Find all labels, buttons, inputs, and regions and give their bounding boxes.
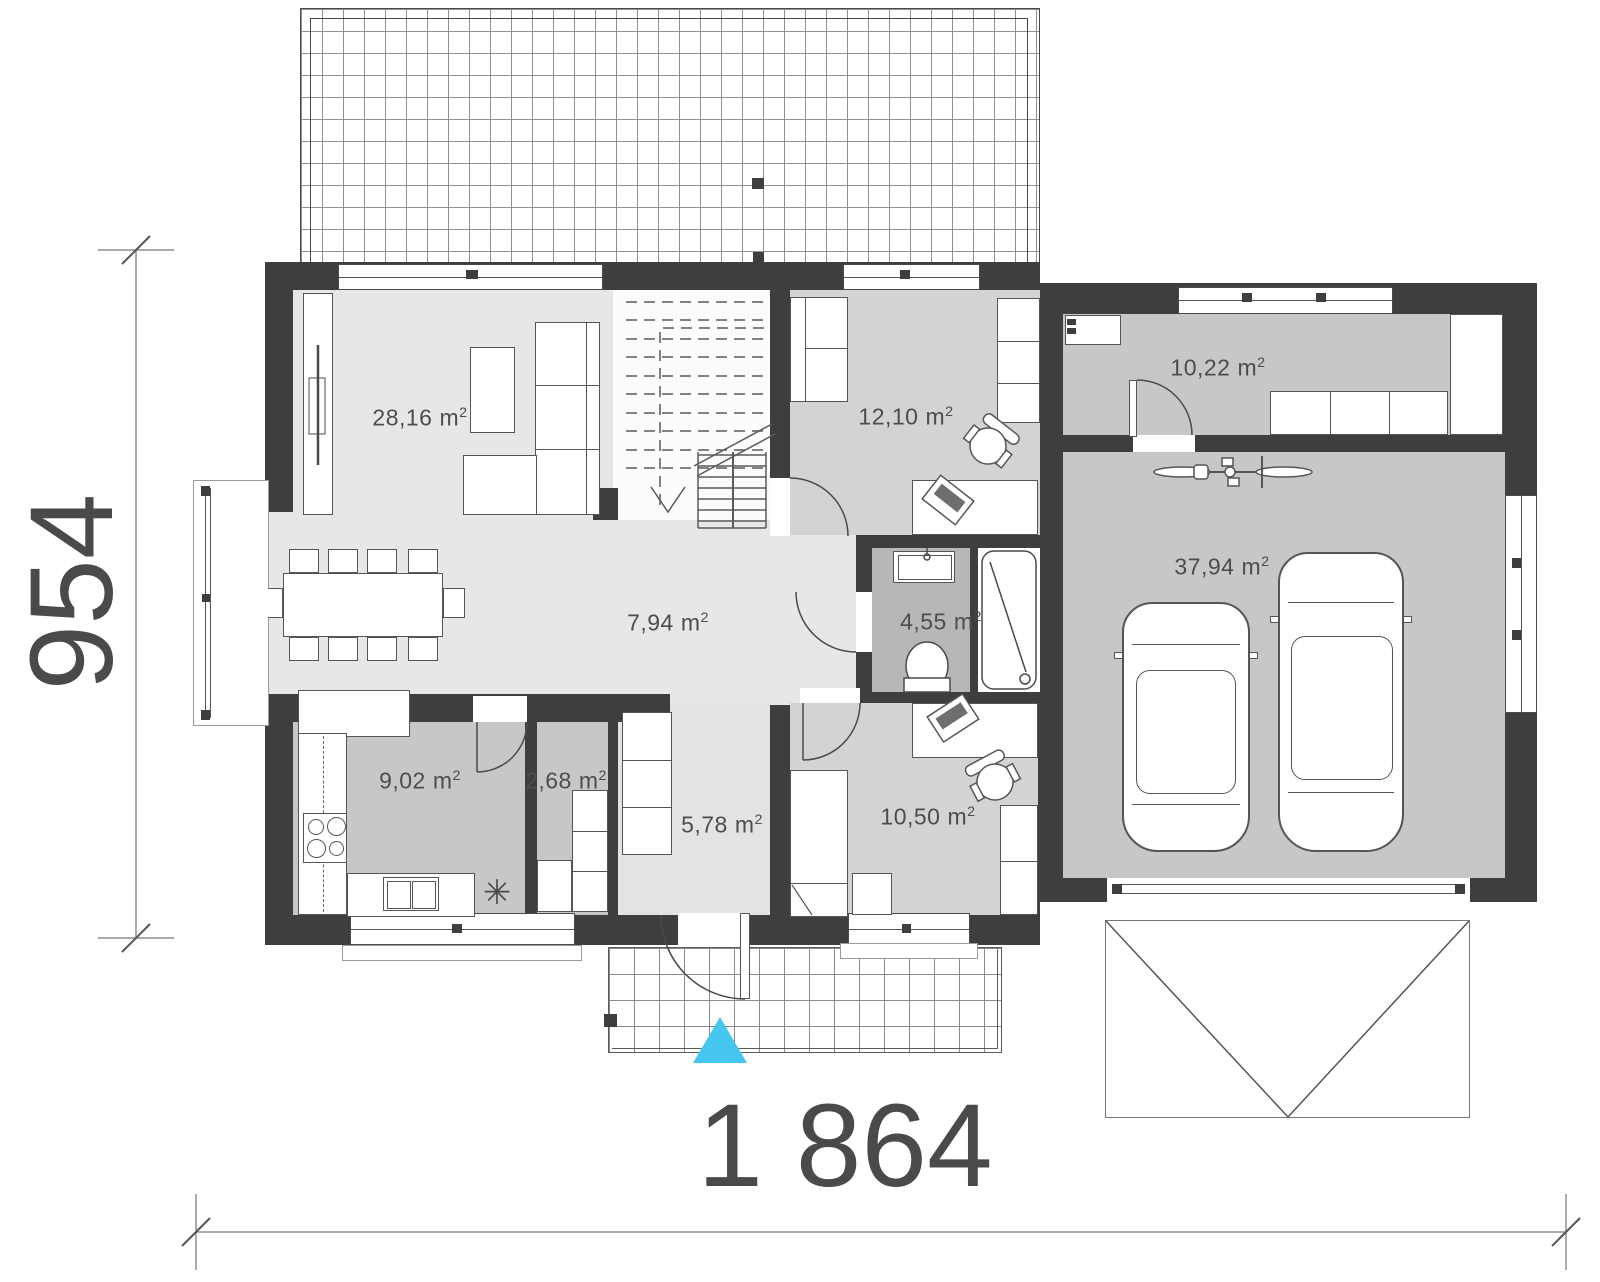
- office-wardrobe: [997, 298, 1040, 423]
- terrace-top-inner-border: [310, 18, 1028, 264]
- bay-window-interior: [212, 488, 268, 718]
- appliance-mark: [1067, 328, 1076, 334]
- pantry-door-opening: [473, 696, 527, 722]
- porch-inner-border: [612, 949, 998, 1049]
- kitchen-window-sill: [342, 945, 582, 961]
- bay-window-mullion: [201, 486, 210, 496]
- sofa: [535, 322, 600, 515]
- room-label-living: 28,16m2: [372, 405, 467, 432]
- office-door-opening: [770, 478, 790, 536]
- kitchen-counter-top: [298, 690, 410, 737]
- dining-chair: [367, 637, 397, 661]
- dining-table: [283, 573, 443, 637]
- room-label-entrance: 5,78m2: [681, 812, 763, 839]
- bedroom-desk: [912, 703, 1038, 758]
- bedroom-wardrobe: [1000, 805, 1038, 915]
- garage-window: [1505, 495, 1537, 713]
- room-label-office: 12,10m2: [858, 404, 953, 431]
- kitchen-sink: [383, 877, 439, 911]
- bedroom-window-sill: [840, 943, 978, 959]
- depth-dimension-label: 954: [4, 494, 140, 691]
- dining-chair: [328, 549, 358, 573]
- utility-garage-door-opening: [1133, 435, 1195, 452]
- coffee-table: [470, 347, 515, 433]
- dining-chair: [289, 637, 319, 661]
- bathroom-sink: [893, 551, 955, 583]
- bathroom-shower-zone: [978, 548, 1040, 692]
- utility-door-leaf: [1129, 380, 1137, 437]
- window-mullion: [1512, 558, 1521, 568]
- window-mullion: [900, 270, 910, 279]
- ottoman: [463, 455, 537, 515]
- window-mullion: [902, 924, 911, 933]
- car: [1122, 602, 1250, 852]
- bathroom-door-opening: [856, 592, 872, 652]
- tv-cabinet: [303, 293, 333, 515]
- office-window: [843, 264, 980, 290]
- bay-window-mullion: [201, 710, 210, 720]
- window-mullion: [1316, 293, 1326, 302]
- dining-chair: [328, 637, 358, 661]
- dining-chair: [289, 549, 319, 573]
- hall-wardrobe: [622, 712, 672, 855]
- appliance-mark: [1067, 319, 1076, 325]
- dining-chair: [408, 637, 438, 661]
- pantry-shelf: [572, 790, 608, 912]
- entrance-door-leaf: [740, 913, 750, 999]
- cooktop: [303, 813, 347, 863]
- pantry-shelf: [537, 860, 572, 912]
- room-label-utility: 10,22m2: [1170, 355, 1265, 382]
- room-label-kitchen: 9,02m2: [379, 768, 461, 795]
- utility-tall-cabinet: [1450, 314, 1503, 435]
- garage-door-panel: [1112, 884, 1465, 894]
- car: [1278, 552, 1404, 852]
- office-desk: [912, 480, 1038, 535]
- bay-window-glass: [210, 488, 211, 718]
- bedroom-door-opening: [800, 688, 860, 703]
- window-mullion: [1242, 293, 1252, 302]
- garage-apron: [1105, 920, 1470, 1118]
- dining-chair: [408, 549, 438, 573]
- office-sofa-bed: [790, 297, 848, 402]
- room-label-bathroom: 4,55m2: [900, 609, 982, 636]
- terrace-post: [752, 178, 764, 189]
- room-label-bedroom: 10,50m2: [880, 804, 975, 831]
- room-label-hallway: 7,94m2: [627, 610, 709, 637]
- bay-window-mullion: [202, 594, 210, 602]
- dining-chair: [367, 549, 397, 573]
- boiler-symbol: ✳: [483, 873, 512, 913]
- bay-window-glass: [205, 488, 206, 718]
- nightstand: [852, 873, 892, 915]
- entrance-door-opening: [678, 913, 748, 945]
- width-dimension-label: 1 864: [697, 1078, 992, 1214]
- bed: [790, 770, 848, 917]
- floor-plan-canvas: ✳: [0, 0, 1600, 1282]
- terrace-post: [753, 252, 764, 264]
- dining-chair: [443, 588, 465, 618]
- garage-door-cap: [1112, 884, 1122, 894]
- staircase-floor: [613, 290, 770, 520]
- utility-cabinets: [1270, 391, 1448, 435]
- room-label-garage: 37,94m2: [1174, 554, 1269, 581]
- kitchen-window: [350, 913, 575, 945]
- garage-door-cap: [1455, 884, 1465, 894]
- entrance-marker-triangle: [693, 1017, 747, 1063]
- room-label-pantry: 2,68m2: [525, 768, 607, 795]
- utility-window: [1178, 287, 1393, 314]
- window-mullion: [452, 924, 462, 933]
- porch-post: [604, 1014, 617, 1027]
- window-mullion: [1512, 630, 1521, 640]
- window-mullion: [466, 270, 478, 279]
